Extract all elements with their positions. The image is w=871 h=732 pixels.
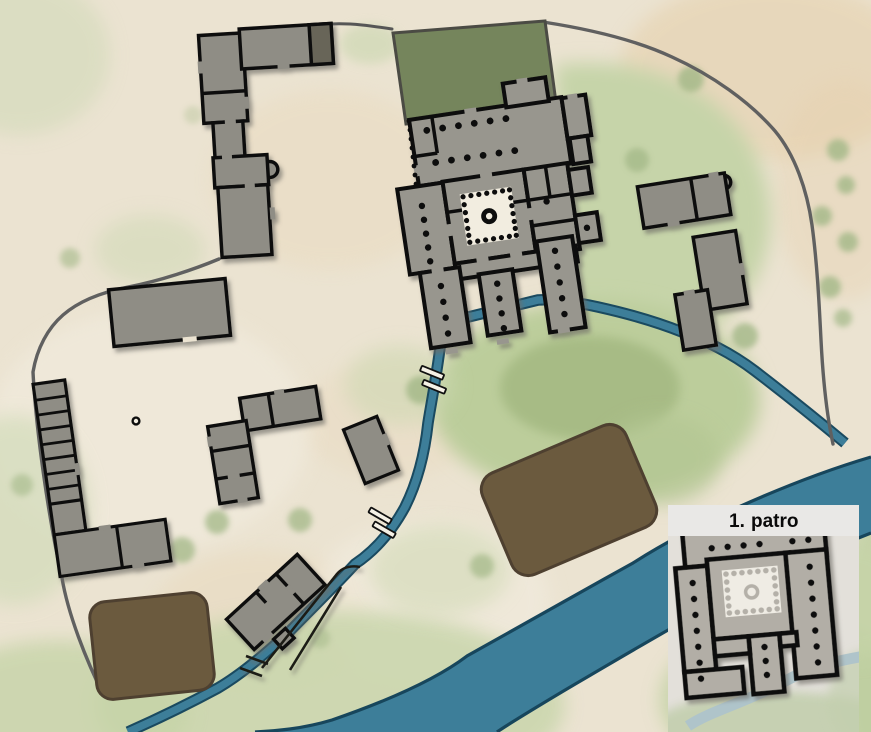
svg-text:1.patro: 1.patro — [729, 511, 799, 532]
